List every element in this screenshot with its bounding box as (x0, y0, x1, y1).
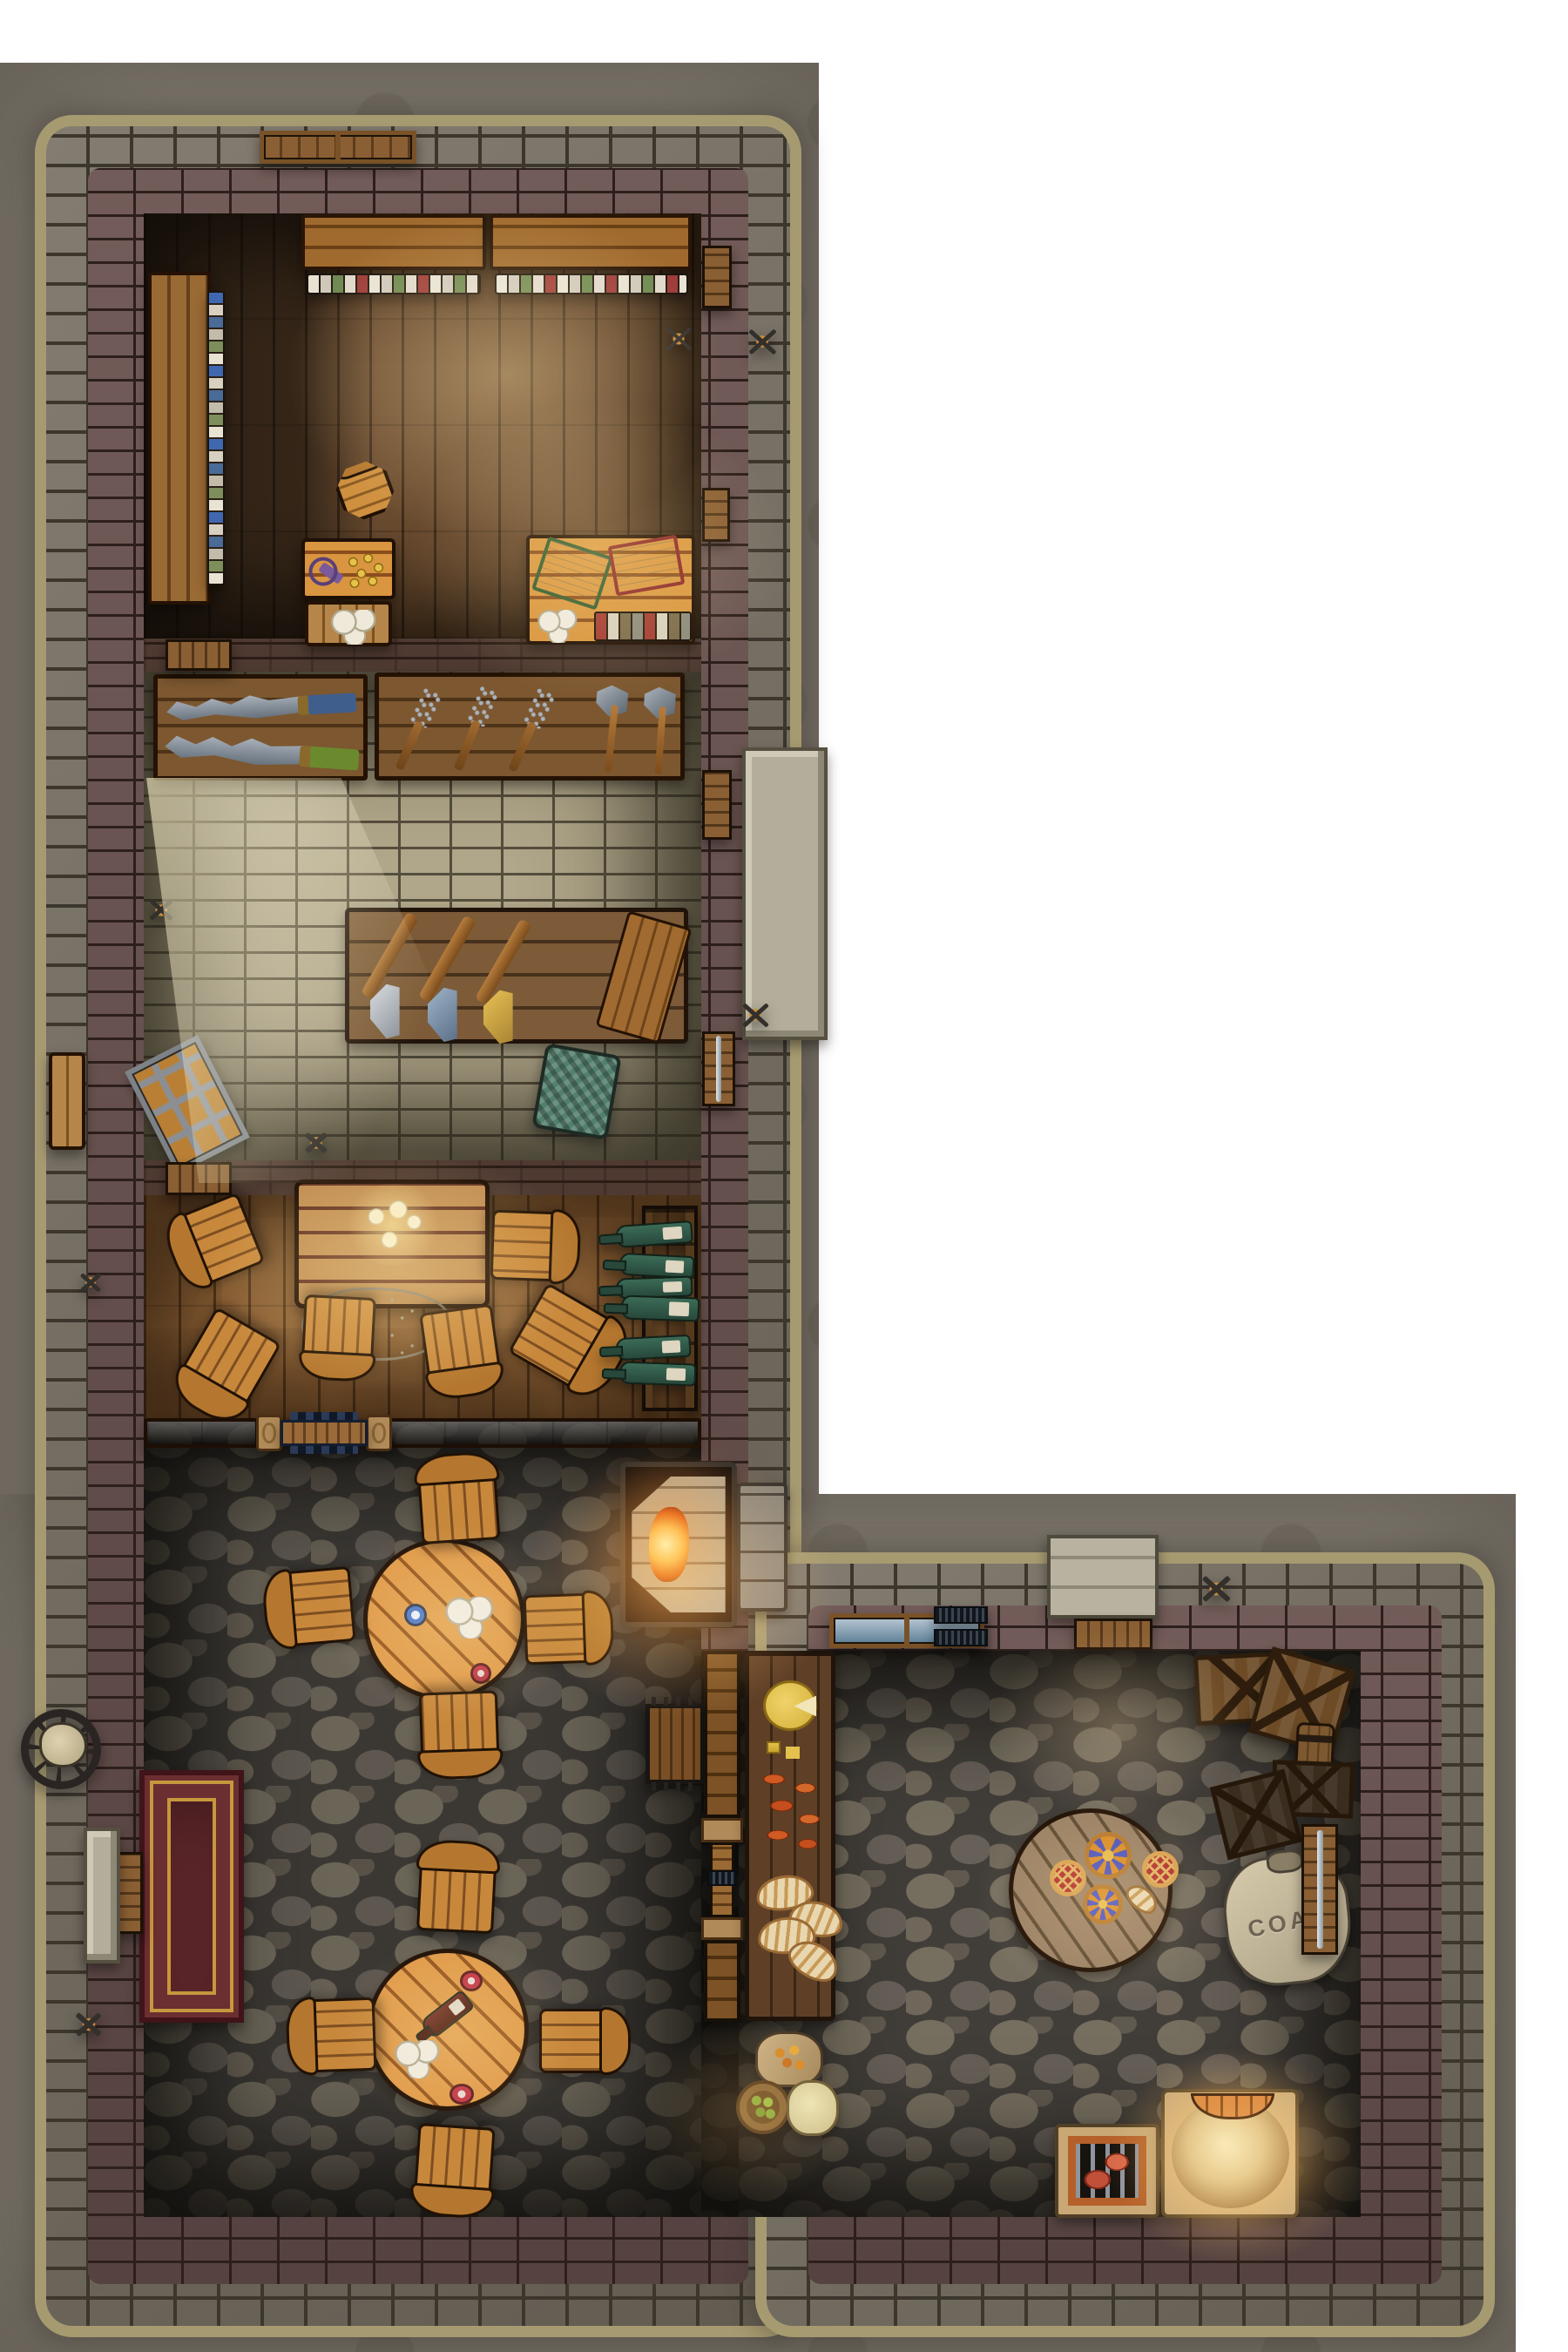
sconce-bedroom (660, 324, 697, 354)
porch-west (84, 1828, 120, 1963)
plate-blue (404, 1604, 427, 1626)
divider-block-a (701, 1818, 743, 1842)
sausages (754, 1766, 833, 1855)
cart-wheel (21, 1709, 101, 1789)
dining-chair-s2 (419, 1304, 501, 1380)
wine-rack (642, 1206, 698, 1411)
pie-lattice-left (1050, 1860, 1086, 1896)
pie-flower-large (1085, 1832, 1132, 1879)
gold-coins (343, 551, 389, 589)
plates-white (444, 1597, 495, 1639)
workbench (345, 908, 688, 1044)
open-book-red (608, 534, 686, 596)
hand-axe-1 (589, 684, 636, 774)
stone-oven (1161, 2089, 1299, 2218)
counter-post-right (366, 1415, 392, 1451)
sconce-armory-ext (737, 998, 774, 1031)
grill-station (1055, 2124, 1159, 2218)
sconce-kitchen-ext (1197, 1570, 1235, 1608)
tavern2-chair-s (414, 2123, 495, 2196)
divider-wall-tavern-kitchen (704, 1651, 740, 2022)
door-east-armory (702, 770, 732, 840)
pie-flower-small (1083, 1884, 1123, 1924)
weapon-rack-right (375, 672, 685, 781)
bookshelf-north-a (301, 214, 486, 270)
club-1 (386, 685, 448, 774)
tavern2-chair-e (539, 2009, 607, 2073)
prep-table (745, 1652, 835, 2021)
purple-key (318, 562, 344, 585)
counter-slide-door (280, 1420, 368, 1446)
desk-plates (537, 610, 578, 643)
white-plates (329, 610, 378, 645)
plate-red-2 (460, 1970, 483, 1991)
pie-lattice-right (1142, 1851, 1179, 1888)
stool-bedroom (330, 456, 399, 524)
bar-counter-right (387, 1418, 701, 1448)
wine-bottle-1 (615, 1220, 693, 1248)
tavern2-chair-w (308, 1997, 377, 2073)
wall-grate-a (934, 1606, 988, 1624)
red-rug (139, 1770, 244, 2023)
sconce-tavern-ext (71, 2005, 106, 2044)
leaning-door-plank (595, 910, 692, 1044)
mugs-white (394, 2040, 441, 2078)
crate-metal (125, 1035, 250, 1174)
cheese-cubes (767, 1741, 781, 1754)
steps-north (1047, 1535, 1159, 1619)
tavern2-chair-n (416, 1862, 497, 1934)
tavern1-chair-e (524, 1593, 592, 1666)
club-2 (444, 683, 504, 774)
dining-chair-nw (179, 1193, 266, 1286)
divider-plank-a (704, 1651, 740, 1818)
weapon-rack-left (153, 674, 368, 781)
basket-woven (531, 1043, 622, 1140)
writing-desk (526, 535, 695, 645)
map-objects: COAL (0, 0, 1568, 2352)
wine-bottle-4 (621, 1294, 700, 1321)
door-east-bedroom (702, 246, 732, 308)
bedroom-bench (305, 601, 392, 646)
sack-fruit (755, 2031, 823, 2087)
tavern1-chair-w (283, 1566, 355, 1646)
fireplace (620, 1462, 737, 1627)
dining-chair-sw (180, 1307, 281, 1408)
cheese-wheel (763, 1680, 817, 1731)
open-book-green (531, 537, 613, 611)
chimney-ext (737, 1483, 787, 1612)
tavern1-chair-s (419, 1690, 500, 1757)
sconce-west-ext (77, 1267, 105, 1298)
wine-bottle-2 (618, 1253, 694, 1279)
dining-chair-se (508, 1282, 614, 1390)
door-interior-bedroom-armory (166, 639, 232, 671)
round-table-1 (363, 1538, 525, 1700)
sconce-armory-south (301, 1124, 331, 1162)
book-row (594, 612, 692, 641)
door-east-armory-south (702, 1031, 735, 1106)
bench-west-ext (49, 1052, 85, 1150)
wine-bottle-5 (615, 1335, 691, 1361)
shelf-items-row-a (307, 274, 481, 294)
sack-grain (787, 2080, 839, 2136)
bookshelf-west-items (207, 291, 225, 585)
window-north-bedroom (260, 131, 416, 164)
sconce-armory-west (145, 892, 177, 929)
dining-chair-s1 (301, 1294, 376, 1361)
divider-grate (707, 1870, 737, 1886)
plate-red-1 (470, 1663, 491, 1684)
porch-east (742, 747, 828, 1040)
club-3 (498, 685, 561, 776)
kitchen-round-table (1009, 1808, 1173, 1972)
sconce-bedroom-ext (743, 326, 781, 357)
coin-table (301, 538, 395, 599)
door-east-kitchen (1301, 1824, 1338, 1955)
bookshelf-north-b (490, 214, 692, 270)
plate-red-3 (449, 2084, 474, 2105)
wine-bottle-table (419, 1990, 476, 2041)
basket-apples (736, 2080, 790, 2134)
bar-counter-left (144, 1418, 259, 1448)
grill-rack-tavern (645, 1704, 705, 1784)
door-interior-armory-dining (166, 1162, 232, 1195)
round-table-2 (367, 1949, 529, 2111)
divider-plank-b (704, 1940, 740, 2022)
battle-map-canvas: COAL (0, 0, 1568, 2352)
shelf-items-row-b (495, 274, 688, 294)
hand-axe-2 (639, 686, 684, 776)
wall-grate-b (934, 1629, 988, 1646)
wine-bottle-6 (619, 1361, 697, 1386)
serrated-dagger-blue (166, 682, 361, 733)
bookshelf-west (148, 272, 211, 605)
food-sacks (736, 2031, 841, 2139)
dining-chair-east (490, 1210, 559, 1282)
candles (360, 1198, 426, 1252)
door-sill-north (1074, 1619, 1152, 1650)
tavern1-chair-n (417, 1473, 500, 1544)
divider-block-b (701, 1917, 743, 1940)
counter-post-left (256, 1415, 282, 1451)
door-east-weapons (702, 488, 730, 542)
serrated-dagger-green (163, 724, 364, 783)
throwing-axe-gold (480, 924, 567, 1046)
